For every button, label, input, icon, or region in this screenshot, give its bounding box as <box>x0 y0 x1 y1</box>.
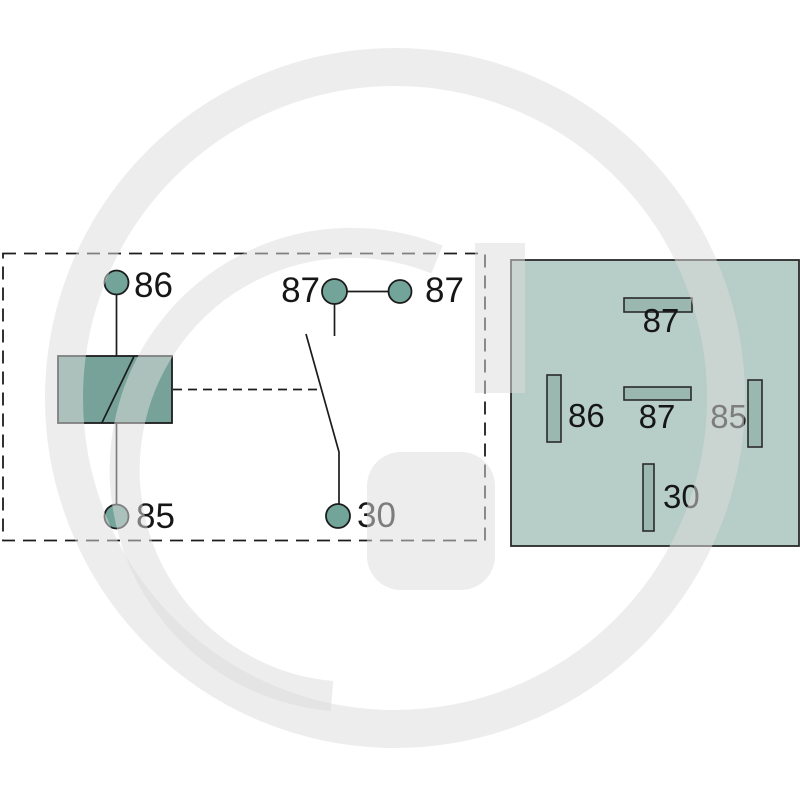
pin-85-right <box>748 380 762 447</box>
relay-coil <box>58 356 172 423</box>
pin-label-87-center: 87 <box>639 398 676 435</box>
terminal-circle-86 <box>105 271 129 295</box>
terminal-label-87-left: 87 <box>281 271 320 310</box>
terminal-label-85: 85 <box>136 497 175 536</box>
pin-30-bottom <box>643 464 654 531</box>
terminal-circle-87-right <box>389 280 412 303</box>
pin-label-85: 85 <box>710 398 747 435</box>
terminal-label-30: 30 <box>357 496 396 535</box>
relay-pin-base-layout: 87 86 87 85 30 <box>511 260 799 546</box>
pin-label-87-top: 87 <box>643 302 680 339</box>
switch-arm <box>306 334 339 504</box>
pin-label-86: 86 <box>568 397 605 434</box>
relay-wiring-diagram: 86 85 87 87 30 87 86 87 85 30 <box>0 0 800 800</box>
pin-label-30: 30 <box>663 478 700 515</box>
terminal-label-86: 86 <box>134 266 173 305</box>
watermark-inner-arc <box>125 243 437 696</box>
terminal-circle-85 <box>105 505 129 529</box>
terminal-label-87-right: 87 <box>425 271 464 310</box>
terminal-circle-87-left <box>322 279 347 304</box>
terminal-circle-30 <box>326 504 350 528</box>
pin-86-left <box>547 375 561 442</box>
relay-circuit-schematic: 86 85 87 87 30 <box>3 254 485 541</box>
